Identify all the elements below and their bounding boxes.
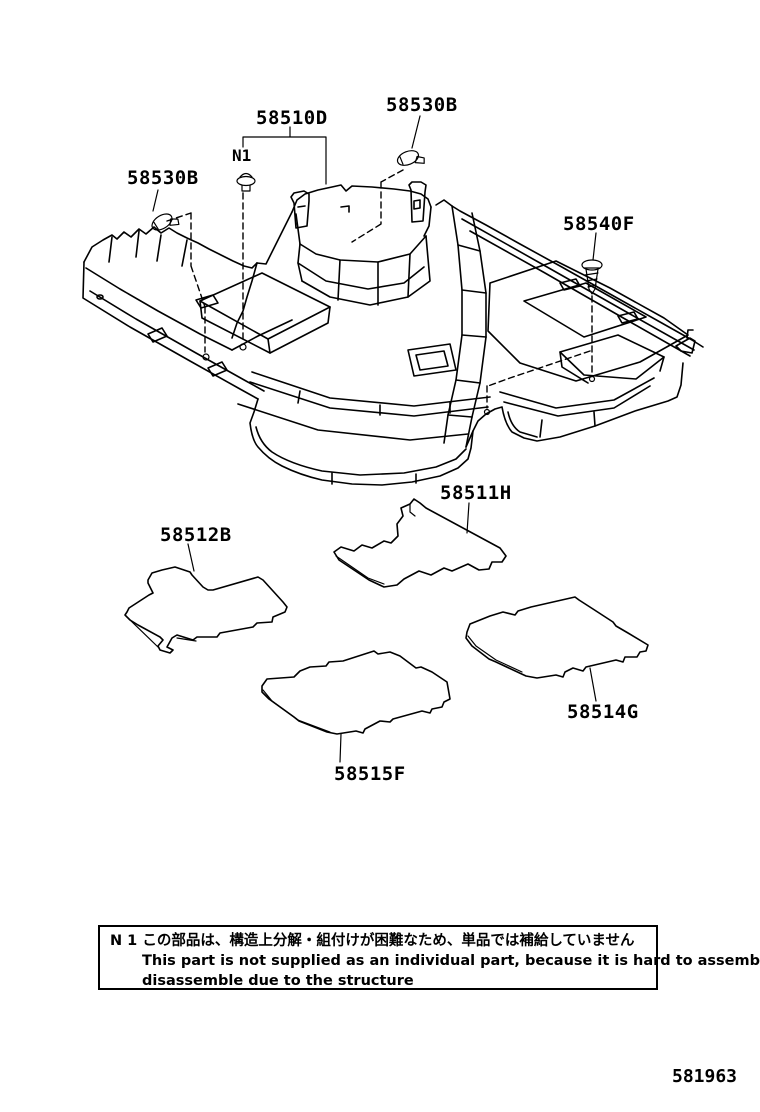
parts-diagram-page: 58530B 58510D N1 58530B 58540F 58511H 58… (0, 0, 760, 1112)
supply-note-box: N 1 この部品は、構造上分解・組付けが困難なため、単品では補給していません T… (98, 925, 658, 990)
figure-code: 581963 (672, 1068, 737, 1086)
part-label-58530b-left: 58530B (127, 169, 199, 188)
note-line-english-1: This part is not supplied as an individu… (142, 951, 656, 971)
mat-58512b-drawing (125, 567, 287, 653)
push-pin-glyph-n1 (237, 174, 255, 192)
trim-clip-glyph-top (395, 146, 426, 172)
part-label-58515f: 58515F (334, 765, 406, 784)
part-label-58510d: 58510D (256, 109, 328, 128)
note-ref-label-n1: N1 (232, 148, 251, 164)
mat-58514g-drawing (466, 597, 648, 678)
part-label-58530b-top: 58530B (386, 96, 458, 115)
part-label-58514g: 58514G (567, 703, 639, 722)
mat-58515f-drawing (262, 651, 450, 734)
fastener-leader-dashed-lines (167, 170, 595, 415)
part-label-58511h: 58511H (440, 484, 512, 503)
part-label-58540f: 58540F (563, 215, 635, 234)
note-line-english-2: disassemble due to the structure (142, 971, 656, 991)
note-line-japanese: N 1 この部品は、構造上分解・組付けが困難なため、単品では補給していません (110, 931, 656, 951)
part-label-58512b: 58512B (160, 526, 232, 545)
mat-58511h-drawing (334, 499, 506, 587)
